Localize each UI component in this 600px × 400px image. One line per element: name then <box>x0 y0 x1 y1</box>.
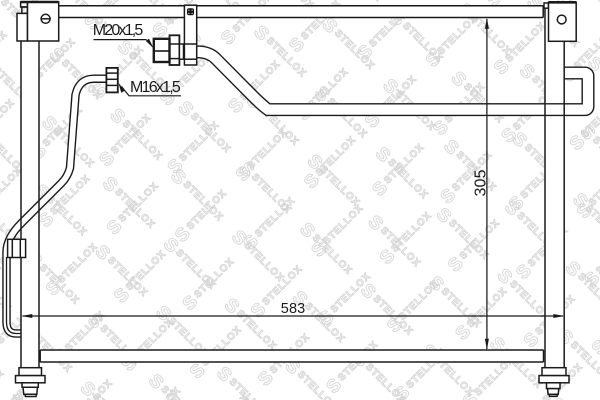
svg-text:583: 583 <box>281 301 306 317</box>
svg-text:M20x1,5: M20x1,5 <box>93 22 144 39</box>
svg-text:305: 305 <box>472 169 489 196</box>
svg-text:M16x1,5: M16x1,5 <box>130 79 181 96</box>
